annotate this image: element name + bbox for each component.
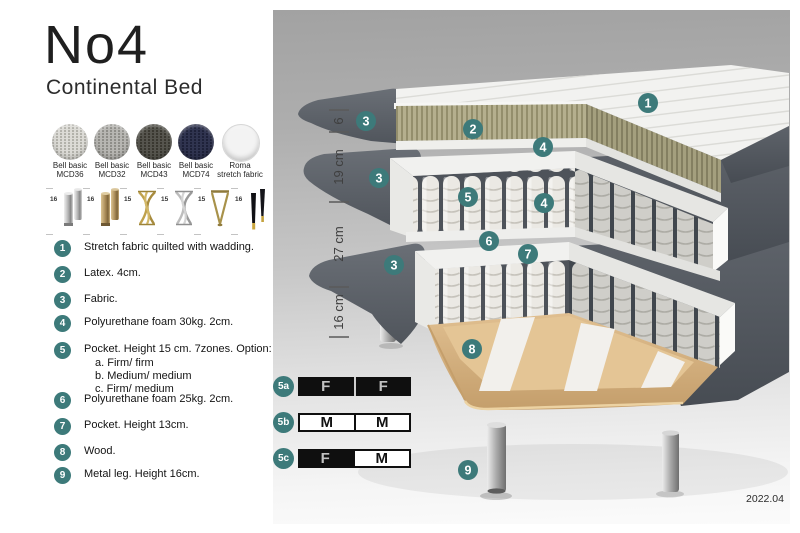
legend-number-7: 7 xyxy=(54,418,71,435)
callout-6: 6 xyxy=(479,231,499,251)
leg-option-hairpin-gold: 15 xyxy=(198,186,235,238)
fabric-swatch xyxy=(136,124,172,160)
callout-3-topper: 3 xyxy=(356,111,376,131)
leg-option-cylinder-silver: 16 xyxy=(50,186,87,238)
leg-height-label: 15 xyxy=(161,196,168,203)
svg-text:9: 9 xyxy=(465,464,472,478)
svg-text:2: 2 xyxy=(470,123,477,137)
legend-number-6: 6 xyxy=(54,392,71,409)
legend-text-3: Fabric. xyxy=(84,293,279,306)
firmness-cell: M xyxy=(356,413,412,432)
firmness-cell: F xyxy=(356,377,412,396)
page-title: No4 xyxy=(44,14,149,76)
callout-3-mattress: 3 xyxy=(369,168,389,188)
legend-text-1: Stretch fabric quilted with wadding. xyxy=(84,241,279,254)
legend-text-8: Wood. xyxy=(84,445,279,458)
leg-height-label: 16 xyxy=(50,196,57,203)
box-left-fabric xyxy=(309,244,425,344)
swatch-label: Romastretch fabric xyxy=(214,161,266,179)
leg-height-label: 15 xyxy=(198,196,205,203)
firmness-cell: M xyxy=(353,449,412,468)
legend-number-9: 9 xyxy=(54,467,71,484)
legend-number-3: 3 xyxy=(54,292,71,309)
legend-option-a: a. Firm/ firm xyxy=(95,357,275,370)
svg-text:6: 6 xyxy=(486,235,493,249)
callout-9: 9 xyxy=(458,460,478,480)
leg-option-twist-gold: 15 xyxy=(124,186,161,238)
version-label: 2022.04 xyxy=(746,493,784,505)
bed-leg-front xyxy=(487,424,506,492)
callout-2: 2 xyxy=(463,119,483,139)
callout-8: 8 xyxy=(462,339,482,359)
legend-text-6: Polyurethane foam 25kg. 2cm. xyxy=(84,393,279,406)
dimension-label-box: 27 cm xyxy=(331,226,346,261)
leg-icon-cylinder-silver xyxy=(58,186,86,232)
firmness-badge-5c: 5c xyxy=(273,448,294,469)
page-subtitle: Continental Bed xyxy=(46,76,203,100)
fabric-swatch xyxy=(178,124,214,160)
firmness-cell: M xyxy=(298,413,354,432)
svg-text:3: 3 xyxy=(391,259,398,273)
legend-text-9: Metal leg. Height 16cm. xyxy=(84,468,279,481)
firmness-cell: F xyxy=(298,449,353,468)
dimension-labels: 6 19 cm 27 cm 16 cm xyxy=(331,117,346,329)
fabric-swatch xyxy=(52,124,88,160)
legend-text-5: Pocket. Height 15 cm. 7zones. Option: xyxy=(84,343,279,356)
dimension-label-leg: 16 cm xyxy=(331,294,346,329)
bed-cutaway-illustration: 6 19 cm 27 cm 16 cm 1 2 3 3 3 4 4 5 6 7 … xyxy=(273,10,790,524)
legend-number-1: 1 xyxy=(54,240,71,257)
leg-option-cylinder-brass: 16 xyxy=(87,186,124,238)
svg-text:3: 3 xyxy=(363,115,370,129)
firmness-bar-5c: F M xyxy=(298,449,411,468)
legend-text-4: Polyurethane foam 30kg. 2cm. xyxy=(84,316,279,329)
callout-4-bottom: 4 xyxy=(534,193,554,213)
legend-number-8: 8 xyxy=(54,444,71,461)
svg-text:5: 5 xyxy=(465,191,472,205)
svg-text:1: 1 xyxy=(645,97,652,111)
legend-number-4: 4 xyxy=(54,315,71,332)
legend-option-b: b. Medium/ medium xyxy=(95,370,275,383)
svg-text:7: 7 xyxy=(525,248,532,262)
dimension-label-topper: 6 xyxy=(331,117,346,124)
topper-left-fabric xyxy=(298,89,406,144)
leg-icon-taper-black-gold xyxy=(243,186,271,232)
callout-5: 5 xyxy=(458,187,478,207)
svg-text:3: 3 xyxy=(376,172,383,186)
illustration-panel: 6 19 cm 27 cm 16 cm 1 2 3 3 3 4 4 5 6 7 … xyxy=(273,10,790,524)
leg-icon-twist-gold xyxy=(132,186,160,232)
callout-7: 7 xyxy=(518,244,538,264)
bed-leg-right xyxy=(662,432,679,492)
svg-text:8: 8 xyxy=(469,343,476,357)
leg-height-label: 16 xyxy=(235,196,242,203)
firmness-bar-5b: M M xyxy=(298,413,411,432)
product-sheet: No4 Continental Bed Bell basicMCD36 Bell… xyxy=(0,0,800,533)
leg-option-twist-silver: 15 xyxy=(161,186,198,238)
latex-cut-left xyxy=(396,104,586,141)
leg-icon-cylinder-brass xyxy=(95,186,123,232)
firmness-badge-5b: 5b xyxy=(273,412,294,433)
leg-option-taper-black-gold: 16 xyxy=(235,186,272,238)
callout-4-top: 4 xyxy=(533,137,553,157)
callout-1: 1 xyxy=(638,93,658,113)
leg-height-label: 15 xyxy=(124,196,131,203)
legend-text-7: Pocket. Height 13cm. xyxy=(84,419,279,432)
dimension-label-mattress: 19 cm xyxy=(331,149,346,184)
callout-3-box: 3 xyxy=(384,255,404,275)
svg-text:4: 4 xyxy=(541,197,548,211)
firmness-badge-5a: 5a xyxy=(273,376,294,397)
firmness-cell: F xyxy=(298,377,354,396)
leg-icon-hairpin-gold xyxy=(206,186,234,232)
firmness-bar-5a: F F xyxy=(298,377,411,396)
legend-number-2: 2 xyxy=(54,266,71,283)
fabric-swatch xyxy=(94,124,130,160)
legend-text-2: Latex. 4cm. xyxy=(84,267,279,280)
svg-text:4: 4 xyxy=(540,141,547,155)
leg-icon-twist-silver xyxy=(169,186,197,232)
legend-number-5: 5 xyxy=(54,342,71,359)
fabric-swatch xyxy=(222,124,260,162)
leg-height-label: 16 xyxy=(87,196,94,203)
